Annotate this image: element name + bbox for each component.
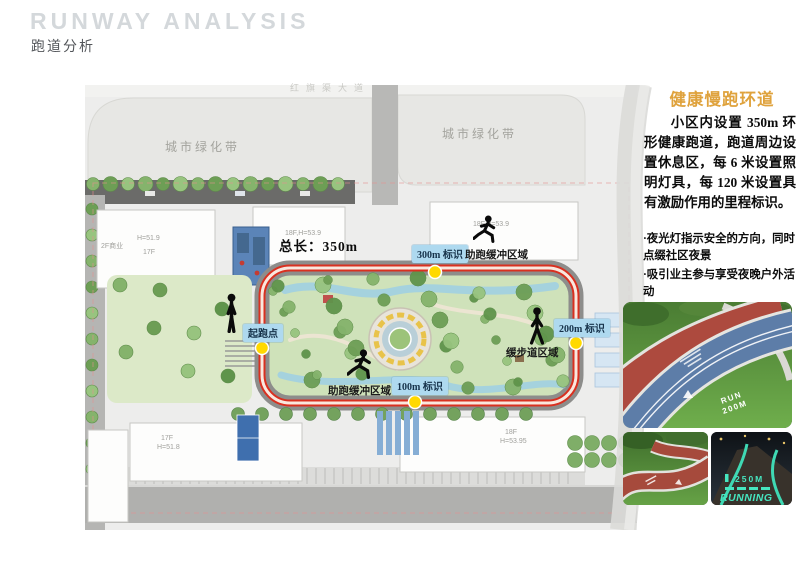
- bullet-item: ·夜光灯指示安全的方向，同时点缀社区夜景: [643, 231, 798, 264]
- marker-start: 起跑点: [243, 324, 283, 342]
- site-plan-map: 红旗渠大道 城市绿化带 城市绿化带 总长：350m 2F商业 H=51.9 17…: [85, 85, 637, 530]
- photo-track-day: RUN 200M: [623, 302, 792, 428]
- sidebar-heading: 健康慢跑环道: [648, 86, 796, 110]
- page-title-zh: 跑道分析: [31, 36, 95, 56]
- marker-100m: 100m 标识: [392, 377, 448, 395]
- building-label-se-floors: 18F: [505, 429, 517, 438]
- building-label-nmid: 18F,H=53.9: [285, 230, 321, 239]
- dot-200m: [570, 337, 583, 350]
- marker-200m: 200m 标识: [554, 319, 610, 337]
- photo-night-distance: 250M: [735, 474, 764, 484]
- zone-buffer-bottom: 助跑缓冲区域: [328, 383, 391, 398]
- sidebar-paragraph: 小区内设置 350m 环形健康跑道，跑道周边设置休息区，每 6 米设置照明灯具，…: [644, 113, 796, 214]
- green-belt-right-label: 城市绿化带: [442, 125, 517, 142]
- marker-300m: 300m 标识: [412, 245, 468, 263]
- top-road-label: 红旗渠大道: [290, 81, 370, 94]
- photo-track-red: [623, 432, 708, 505]
- dot-100m: [409, 396, 422, 409]
- bullet-item: ·吸引业主参与享受夜晚户外活动: [643, 267, 798, 300]
- green-belt-left-label: 城市绿化带: [165, 138, 240, 155]
- building-label-nw-height: H=51.9: [137, 235, 160, 244]
- slide: RUNWAY ANALYSIS 跑道分析: [0, 0, 800, 565]
- zone-buffer-top: 助跑缓冲区域: [465, 247, 528, 262]
- road-bottom: [85, 485, 637, 523]
- building-label-se-height: H=53.95: [500, 438, 527, 447]
- page-title-en: RUNWAY ANALYSIS: [30, 8, 309, 35]
- central-plaza: [369, 308, 431, 370]
- building-label-sw-floors: 17F: [161, 435, 173, 444]
- building-label-nw-use: 2F商业: [101, 243, 123, 252]
- road-vertical: [372, 85, 398, 205]
- building-label-nw-floors: 17F: [143, 249, 155, 258]
- building-label-sw-height: H=51.8: [157, 444, 180, 453]
- dot-300m: [429, 266, 442, 279]
- dot-start: [256, 342, 269, 355]
- photo-track-night: 250M RUNNING: [711, 432, 792, 505]
- photo-night-label: RUNNING: [720, 492, 773, 504]
